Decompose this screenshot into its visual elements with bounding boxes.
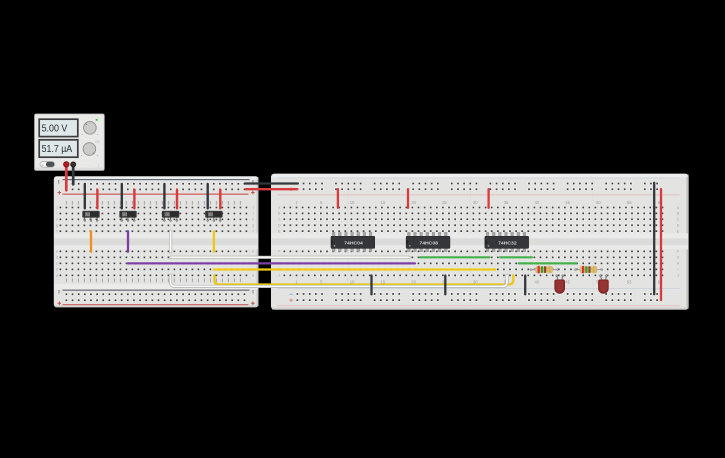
svg-text:15: 15: [381, 200, 386, 205]
svg-text:40: 40: [535, 280, 540, 285]
svg-text:20: 20: [411, 200, 416, 205]
svg-text:g: g: [252, 224, 254, 228]
svg-text:≡≡: ≡≡: [89, 163, 94, 168]
svg-text:J: J: [278, 274, 280, 278]
svg-text:74HC04: 74HC04: [344, 241, 363, 246]
svg-text:55: 55: [627, 280, 632, 285]
svg-text:35: 35: [504, 200, 509, 205]
svg-text:10: 10: [350, 200, 355, 205]
svg-text:74HC32: 74HC32: [498, 241, 517, 246]
svg-text:a: a: [56, 274, 58, 278]
svg-text:51.7 µA: 51.7 µA: [42, 144, 73, 155]
svg-text:74HC08: 74HC08: [419, 241, 438, 246]
svg-text:c: c: [56, 262, 58, 266]
svg-text:I: I: [678, 268, 679, 272]
svg-text:J: J: [677, 274, 679, 278]
svg-text:h: h: [56, 218, 58, 222]
svg-text:5.00 V: 5.00 V: [42, 123, 68, 134]
svg-text:40: 40: [535, 200, 540, 205]
svg-text:h: h: [252, 218, 254, 222]
svg-text:F: F: [677, 250, 679, 254]
svg-text:45: 45: [565, 200, 570, 205]
svg-text:f: f: [253, 230, 254, 234]
svg-text:j: j: [56, 206, 58, 210]
svg-text:g: g: [56, 224, 58, 228]
svg-text:30: 30: [473, 200, 478, 205]
svg-text:d: d: [56, 256, 58, 260]
svg-text:55: 55: [627, 200, 632, 205]
svg-text:50: 50: [596, 200, 601, 205]
svg-text:25: 25: [442, 200, 447, 205]
svg-text:e: e: [252, 250, 254, 254]
svg-text:F: F: [278, 250, 280, 254]
svg-text:j: j: [252, 206, 254, 210]
svg-text:f: f: [57, 230, 58, 234]
svg-text:e: e: [56, 250, 58, 254]
svg-text:G: G: [677, 256, 680, 260]
svg-text:a: a: [252, 274, 254, 278]
svg-text:45: 45: [565, 280, 570, 285]
svg-text:b: b: [56, 268, 58, 272]
